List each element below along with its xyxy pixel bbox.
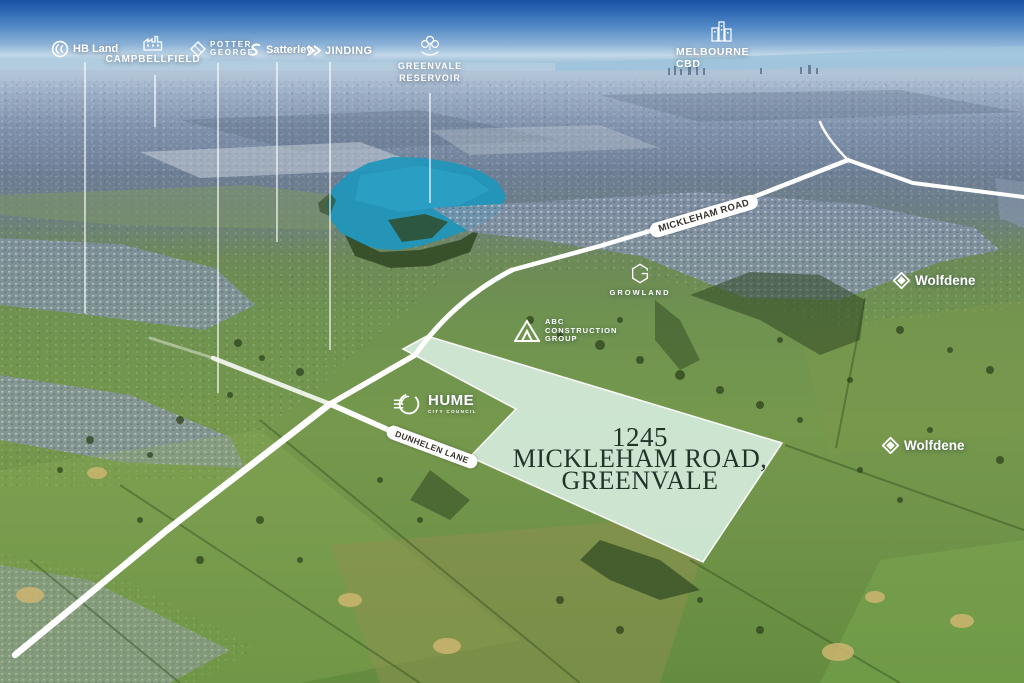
trees-water-icon — [416, 34, 444, 60]
growland-text: GROWLAND — [610, 288, 671, 297]
satterley-label: Satterley — [247, 42, 312, 58]
double-chevron-icon — [306, 44, 322, 57]
melbourne-cbd-text: MELBOURNE CBD — [676, 46, 766, 70]
site-address-title: 1245 MICKLEHAM ROAD, GREENVALE — [509, 426, 771, 492]
circle-monogram-icon — [51, 40, 69, 58]
hume-text: HUME — [428, 394, 474, 408]
group-text: GROUP — [545, 335, 578, 344]
jinding-text: JINDING — [325, 45, 372, 57]
melbourne-cbd-label: MELBOURNE CBD — [676, 19, 766, 70]
hexagon-g-icon — [629, 262, 651, 285]
hume-label: HUME CITY COUNCIL — [392, 388, 477, 420]
campbellfield-text: CAMPBELLFIELD — [106, 54, 201, 65]
triangle-icon — [514, 319, 540, 343]
terrain-graphics — [0, 0, 1024, 683]
abc-construction-label: ABC CONSTRUCTION GROUP — [514, 318, 617, 344]
greenvale-text: GREENVALE — [398, 60, 462, 72]
gem-diamond-icon — [190, 41, 206, 57]
suburb-east-edge — [995, 178, 1024, 228]
suburb-west-upper — [0, 238, 255, 330]
greenvale-reservoir-label: GREENVALE RESERVOIR — [390, 34, 470, 84]
hume-sub-text: CITY COUNCIL — [428, 409, 477, 414]
factory-icon — [141, 33, 165, 52]
reservoir-text: RESERVOIR — [399, 72, 461, 84]
wolfdene-south-label: Wolfdene — [882, 437, 965, 454]
growland-label: GROWLAND — [612, 262, 668, 297]
s-swoosh-icon — [247, 42, 262, 58]
address-suburb: GREENVALE — [509, 470, 771, 492]
diamond-logo-icon — [882, 437, 899, 454]
city-buildings-icon — [709, 19, 733, 44]
jinding-label: JINDING — [306, 44, 372, 57]
aerial-map: HB Land CAMPBELLFIELD POTTER GEORGE Satt… — [0, 0, 1024, 683]
campbellfield-label: CAMPBELLFIELD — [108, 33, 198, 65]
potter-george-label: POTTER GEORGE — [190, 41, 255, 57]
wolfdene-south-text: Wolfdene — [904, 438, 965, 453]
wolfdene-north-text: Wolfdene — [915, 273, 976, 288]
wolfdene-north-label: Wolfdene — [893, 272, 976, 289]
dunhelen-lane-west-fade — [150, 338, 213, 358]
diamond-logo-icon — [893, 272, 910, 289]
hume-emblem-icon — [392, 388, 424, 420]
